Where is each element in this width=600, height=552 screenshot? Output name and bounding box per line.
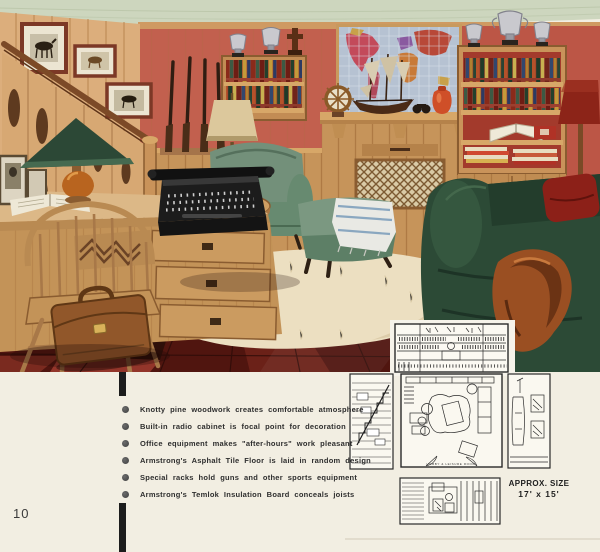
- list-item: Office equipment makes "after-hours" wor…: [140, 435, 470, 452]
- accent-bar-bottom: [119, 503, 126, 552]
- list-item: Built-in radio cabinet is focal point fo…: [140, 418, 470, 435]
- typewriter: [148, 166, 275, 236]
- list-item: Armstrong's Temlok Insulation Board conc…: [140, 486, 470, 503]
- list-item: Special racks hold guns and other sports…: [140, 469, 470, 486]
- bullet-icon: [122, 474, 129, 481]
- room-dimensions: 17' x 15': [508, 489, 570, 499]
- list-item: Knotty pine woodwork creates comfortable…: [140, 401, 470, 418]
- list-item: Armstrong's Asphalt Tile Floor is laid i…: [140, 452, 470, 469]
- red-cushion: [541, 172, 600, 223]
- elevation-bookcase-wall-diagram: [390, 320, 515, 376]
- page-curl-shadow: [345, 538, 600, 540]
- bullet-icon: [122, 423, 129, 430]
- bullet-text: Armstrong's Temlok Insulation Board conc…: [140, 490, 354, 499]
- trophy-icon: [466, 24, 482, 47]
- approx-size-label: APPROX. SIZE: [508, 479, 570, 488]
- trophy-icon: [262, 28, 280, 55]
- bullet-text: Built-in radio cabinet is focal point fo…: [140, 422, 346, 431]
- bullet-icon: [122, 440, 129, 447]
- page-number: 10: [13, 506, 29, 521]
- trophy-icon: [230, 34, 246, 57]
- approx-size-block: APPROX. SIZE 17' x 15': [508, 479, 570, 499]
- bullet-text: Knotty pine woodwork creates comfortable…: [140, 405, 364, 414]
- room-illustration-art: [0, 0, 600, 372]
- bullet-text: Office equipment makes "after-hours" wor…: [140, 439, 353, 448]
- bullet-text: Special racks hold guns and other sports…: [140, 473, 357, 482]
- elevation-sofa-wall-diagram: [507, 373, 551, 469]
- accent-bar-top: [119, 372, 126, 396]
- framed-horse-print: [107, 84, 151, 117]
- bullet-icon: [122, 406, 129, 413]
- catalog-page: HOBBY & LEISURE ROOM: [0, 0, 600, 552]
- feature-bullet-list: Knotty pine woodwork creates comfortable…: [140, 401, 470, 503]
- framed-horse-print: [22, 24, 66, 72]
- bullet-icon: [122, 491, 129, 498]
- bullet-icon: [122, 457, 129, 464]
- room-illustration: [0, 0, 600, 372]
- trophy-icon: [534, 22, 550, 46]
- bullet-text: Armstrong's Asphalt Tile Floor is laid i…: [140, 456, 371, 465]
- framed-horse-print: [75, 46, 115, 76]
